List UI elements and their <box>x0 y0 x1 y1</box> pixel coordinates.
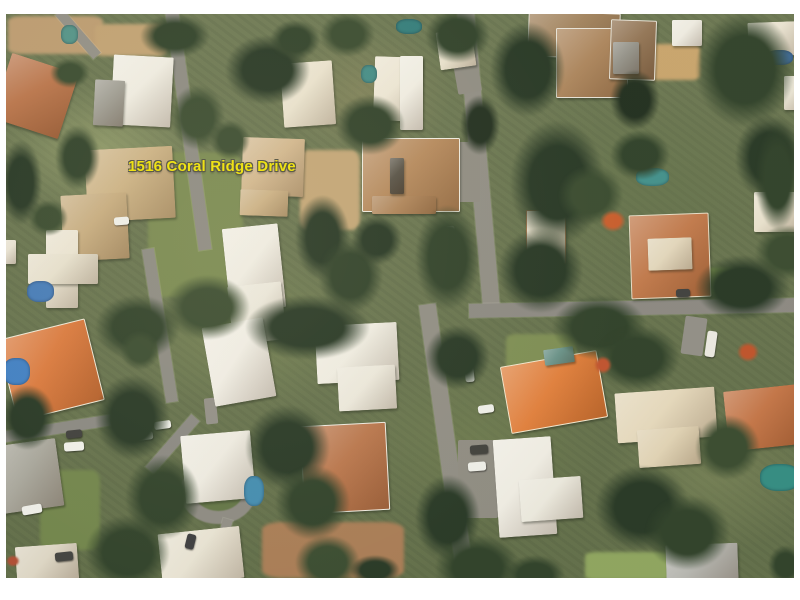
boat-trailer-east <box>704 330 718 357</box>
trees <box>610 130 670 180</box>
flowering-tree-east <box>737 342 759 362</box>
trees <box>350 555 400 578</box>
trees <box>335 95 405 155</box>
pool-blue-left <box>27 281 54 302</box>
house-cross-horizontal <box>28 254 98 284</box>
car-white-main-road-c <box>478 404 495 414</box>
trees <box>415 205 480 310</box>
trees <box>95 375 170 460</box>
trees <box>768 545 794 578</box>
house-cream-right-wing <box>637 426 701 468</box>
car-dark-east-road <box>676 289 690 297</box>
house-white-left-edge <box>6 240 16 264</box>
trees <box>425 14 490 63</box>
image-frame: 1516 Coral Ridge Drive <box>0 0 800 600</box>
car-dark-bottom-left <box>55 551 74 562</box>
pool-teal-top <box>396 19 422 34</box>
trees <box>505 555 565 578</box>
satellite-photo: 1516 Coral Ridge Drive <box>6 14 794 578</box>
pool-teal-bottom-right <box>760 464 794 491</box>
trees <box>755 225 794 280</box>
trees <box>695 415 760 480</box>
trees <box>645 495 730 570</box>
trees <box>755 125 794 230</box>
car-dark-street <box>66 429 83 439</box>
trees <box>50 58 90 88</box>
trees <box>28 200 68 236</box>
car-white-court <box>468 461 487 471</box>
flowering-tree-center <box>600 210 626 232</box>
trees <box>85 515 170 578</box>
house-white-bottom-wing <box>519 476 584 522</box>
flowering-tree-right <box>594 356 612 374</box>
pool-blue-orange-house <box>6 358 30 385</box>
trees <box>55 125 100 190</box>
trees <box>140 14 210 58</box>
trees <box>695 14 794 127</box>
car-dark-court <box>470 444 489 454</box>
trees <box>275 465 350 540</box>
trees <box>6 385 55 450</box>
flowering-shrub-bottom-left <box>6 555 20 567</box>
pool-teal-top-center <box>361 65 377 83</box>
trees <box>270 20 320 60</box>
driveway-east <box>680 316 707 357</box>
trees <box>460 95 500 155</box>
trees <box>210 120 250 160</box>
pool-green-top-left <box>61 25 78 44</box>
trees <box>320 14 375 57</box>
trees <box>120 330 160 370</box>
trees <box>490 22 565 117</box>
car-white-street-c <box>64 441 85 451</box>
trees <box>610 70 660 130</box>
trees <box>245 295 370 360</box>
house-gray-wing <box>93 79 125 127</box>
trees <box>352 215 402 265</box>
trees <box>425 325 490 390</box>
house-1516-shadow-court <box>390 158 404 194</box>
house-tan-center-small <box>240 189 289 217</box>
house-terracotta-east-inner <box>647 237 692 271</box>
car-white-tan-complex <box>114 216 130 225</box>
address-label: 1516 Coral Ridge Drive <box>128 158 296 175</box>
house-white-l-wing <box>337 365 397 412</box>
